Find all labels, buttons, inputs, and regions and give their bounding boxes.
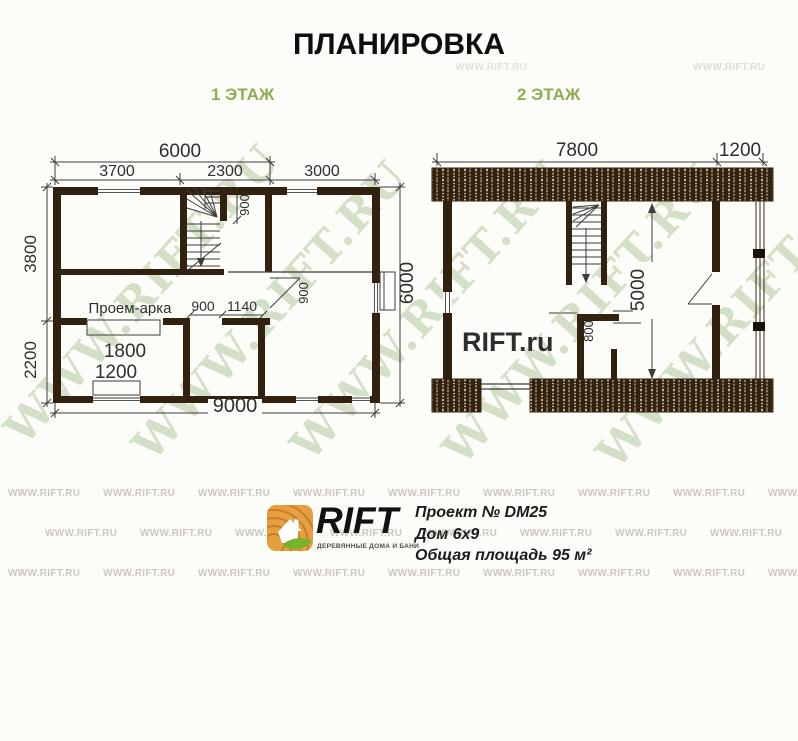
plan2-site-label: RIFT.ru: [462, 327, 554, 357]
floor-plans-drawing: 6000 3700 2300 3000 3800 2200 9000 6000 …: [0, 0, 798, 460]
dim-plan1-6000-top: 6000: [159, 141, 201, 162]
dim-plan1-1200: 1200: [95, 362, 137, 383]
project-number: Проект № DM25: [415, 502, 591, 524]
watermark-text: WWW.RIFT.RU: [710, 528, 782, 539]
watermark-text: WWW.RIFT.RU: [103, 568, 175, 579]
plan2-door-swing: [688, 274, 712, 304]
dim-plan1-9000: 9000: [213, 395, 258, 417]
watermark-text: WWW.RIFT.RU: [8, 568, 80, 579]
watermark-text: WWW.RIFT.RU: [293, 488, 365, 499]
rift-logo-icon: [266, 504, 314, 552]
watermark-text: WWW.RIFT.RU: [198, 488, 270, 499]
plan2-door-gap: [712, 272, 720, 305]
watermark-text: WWW.RIFT.RU: [45, 528, 117, 539]
dim-plan1-1800: 1800: [104, 341, 146, 362]
watermark-text: WWW.RIFT.RU: [388, 488, 460, 499]
plan1-window-bracket: [93, 381, 140, 395]
plan1-arch-opening-bracket: [87, 320, 160, 335]
dim-plan1-hall-900: 900: [191, 298, 215, 314]
dim-plan2-5000: 5000: [628, 269, 649, 311]
watermark-text: WWW.RIFT.RU: [768, 488, 798, 499]
dim-plan2-800: 800: [581, 320, 596, 342]
watermark-text: WWW.RIFT.RU: [578, 568, 650, 579]
brand-logo-text: RIFT: [316, 500, 398, 542]
plan2-balcony-railing: [753, 201, 765, 379]
dim-plan1-stair-900: 900: [237, 194, 252, 216]
watermark-text: WWW.RIFT.RU: [673, 488, 745, 499]
floor1-label: 1 ЭТАЖ: [211, 85, 274, 105]
watermark-text: WWW.RIFT.RU: [293, 568, 365, 579]
dim-plan1-3700: 3700: [99, 163, 135, 180]
plan2-staircase-icon: [572, 205, 601, 283]
dim-plan1-1140: 1140: [227, 298, 257, 314]
dim-plan1-2200: 2200: [21, 341, 40, 379]
watermark-text: WWW.RIFT.RU: [578, 488, 650, 499]
watermark-text: WWW.RIFT.RU: [103, 488, 175, 499]
project-total-area: Общая площадь 95 м²: [415, 545, 591, 567]
plan2-left-window: [443, 292, 452, 313]
dim-plan2-1200: 1200: [719, 140, 761, 161]
watermark-text: WWW.RIFT.RU: [198, 568, 270, 579]
project-info: Проект № DM25 Дом 6х9 Общая площадь 95 м…: [415, 502, 591, 567]
page-title: ПЛАНИРОВКА: [0, 28, 798, 62]
dim-plan1-3000: 3000: [304, 163, 340, 180]
floor-plan-sheet: WWW.RIFT.RUWWW.RIFT.RUWWW.RIFT.RUWWW.RIF…: [0, 0, 798, 741]
plan1-staircase-icon: [187, 187, 221, 271]
plan2: 7800 1200 5000 800 RIFT.ru: [432, 140, 773, 412]
watermark-text: WWW.RIFT.RU: [483, 568, 555, 579]
brand-tagline: ДЕРЕВЯННЫЕ ДОМА И БАНИ: [317, 543, 419, 550]
plan2-bottom-window: [481, 384, 530, 389]
dim-plan2-7800: 7800: [556, 140, 598, 161]
dim-plan1-6000-right: 6000: [397, 262, 418, 304]
watermark-text: WWW.RIFT.RU: [8, 488, 80, 499]
watermark-text: WWW.RIFT.RU: [483, 488, 555, 499]
plan1-arch-label: Проем-арка: [88, 300, 172, 317]
project-house-size: Дом 6х9: [415, 524, 591, 546]
floor2-label: 2 ЭТАЖ: [517, 85, 580, 105]
watermark-text: WWW.RIFT.RU: [673, 568, 745, 579]
plan1: 6000 3700 2300 3000 3800 2200 9000 6000 …: [21, 141, 418, 418]
plan2-dimension-lines: [432, 153, 768, 166]
dim-plan1-2300: 2300: [207, 163, 243, 180]
dim-plan1-entry-900: 900: [296, 282, 311, 304]
plan1-entry-porch: [380, 272, 395, 310]
watermark-text: WWW.RIFT.RU: [615, 528, 687, 539]
watermark-text: WWW.RIFT.RU: [140, 528, 212, 539]
dim-plan1-3800: 3800: [21, 235, 40, 273]
watermark-text: WWW.RIFT.RU: [768, 568, 798, 579]
watermark-text: WWW.RIFT.RU: [388, 568, 460, 579]
